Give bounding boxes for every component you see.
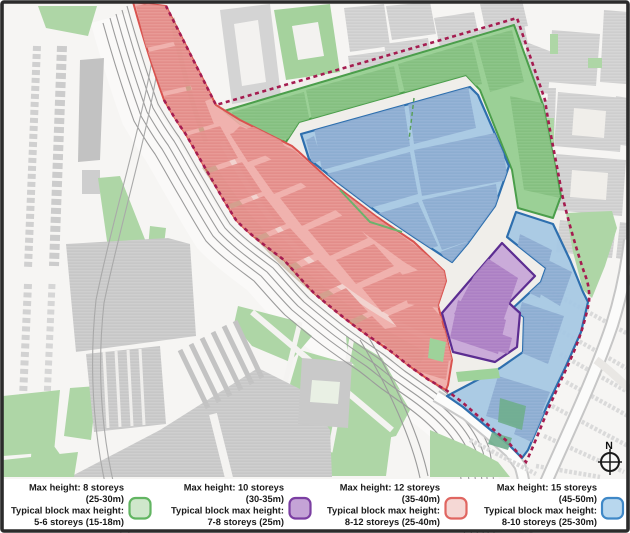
svg-text:5-6 storeys (15-18m): 5-6 storeys (15-18m) <box>34 517 124 527</box>
svg-text:8-10 storeys (25-30m): 8-10 storeys (25-30m) <box>502 517 597 527</box>
svg-text:Max height: 10 storeys: Max height: 10 storeys <box>184 483 284 493</box>
svg-text:(45-50m): (45-50m) <box>559 494 597 504</box>
svg-text:Max height: 12 storeys: Max height: 12 storeys <box>340 483 440 493</box>
svg-text:Max height: 15 storeys: Max height: 15 storeys <box>497 483 597 493</box>
svg-text:Typical block max height:: Typical block max height: <box>171 506 284 516</box>
svg-text:N: N <box>605 440 613 452</box>
svg-text:Typical block max height:: Typical block max height: <box>484 506 597 516</box>
svg-text:Typical block max height:: Typical block max height: <box>11 506 124 516</box>
svg-text:8-12 storeys (25-40m): 8-12 storeys (25-40m) <box>345 517 440 527</box>
svg-text:Typical block max height:: Typical block max height: <box>327 506 440 516</box>
svg-text:7-8 storeys (25m): 7-8 storeys (25m) <box>208 517 284 527</box>
svg-text:(35-40m): (35-40m) <box>402 494 440 504</box>
svg-text:(30-35m): (30-35m) <box>246 494 284 504</box>
svg-text:Max height: 8 storeys: Max height: 8 storeys <box>29 483 124 493</box>
svg-text:(25-30m): (25-30m) <box>86 494 124 504</box>
